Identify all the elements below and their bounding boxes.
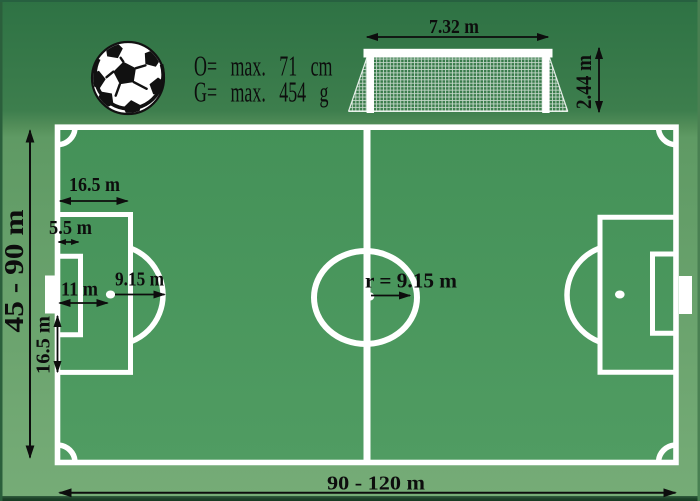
svg-text:G= max. 454 g: G= max. 454 g xyxy=(194,78,329,109)
svg-text:7.32 m: 7.32 m xyxy=(429,16,479,38)
svg-text:90 - 120 m: 90 - 120 m xyxy=(327,473,425,495)
svg-text:11 m: 11 m xyxy=(61,279,98,301)
svg-text:16.5 m: 16.5 m xyxy=(33,316,55,374)
svg-text:r = 9.15 m: r = 9.15 m xyxy=(365,269,458,293)
svg-text:45 - 90 m: 45 - 90 m xyxy=(0,209,29,333)
svg-text:16.5 m: 16.5 m xyxy=(69,174,120,196)
svg-text:2.44 m: 2.44 m xyxy=(571,55,596,109)
svg-text:9.15 m: 9.15 m xyxy=(115,269,164,291)
svg-text:5.5 m: 5.5 m xyxy=(49,217,92,239)
